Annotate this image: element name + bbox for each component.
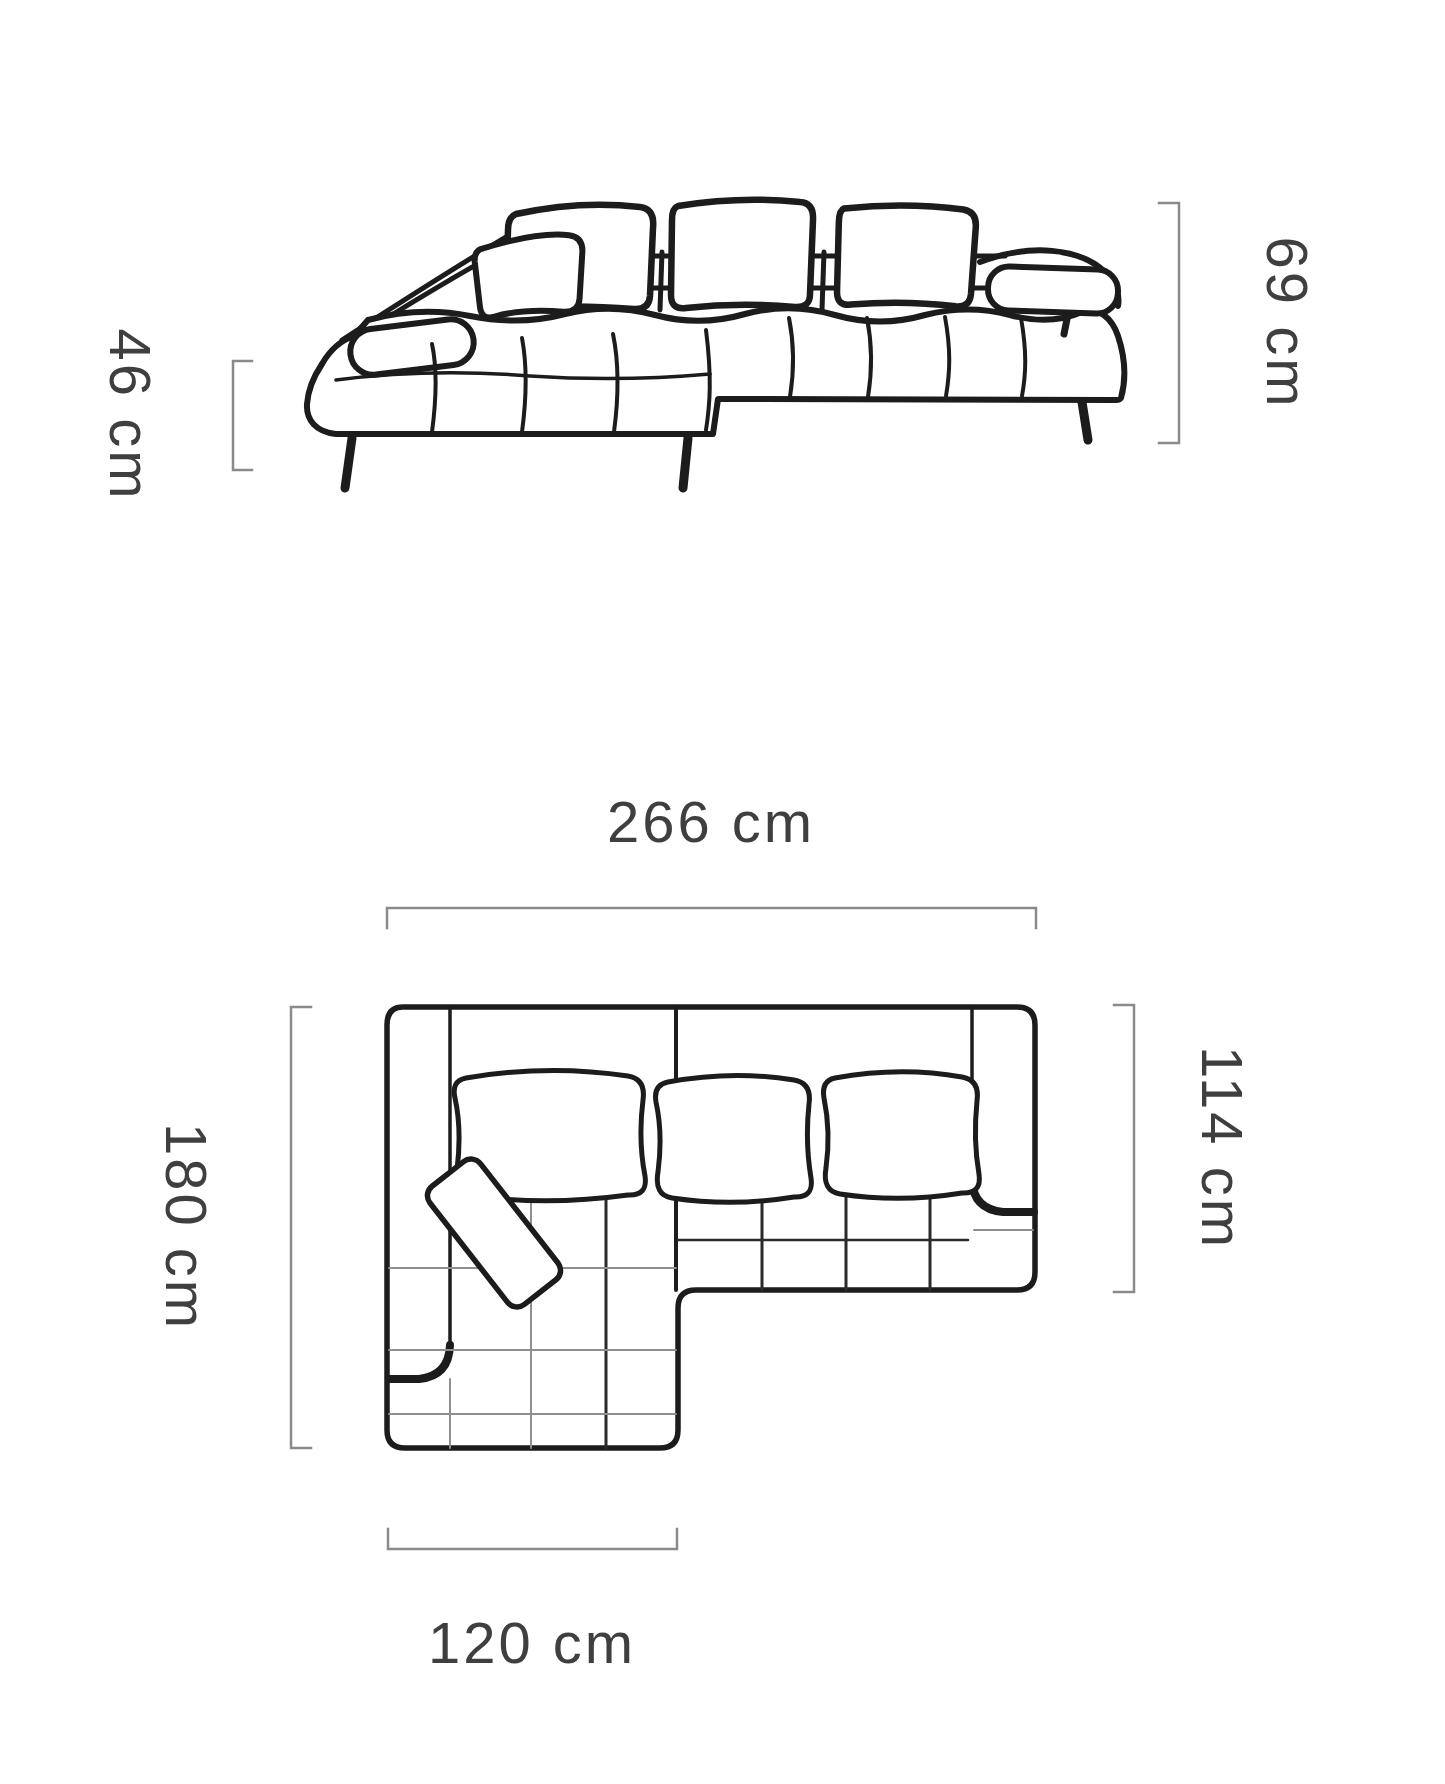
dimension-bracket-total-width xyxy=(387,908,1036,928)
sofa-top-view-drawing xyxy=(387,1007,1035,1448)
dimension-label-total-width: 266 cm xyxy=(581,787,841,857)
dimension-bracket-chaise-width xyxy=(388,1529,677,1549)
dimension-label-back-height: 69 cm xyxy=(1252,193,1322,453)
dimension-bracket-seat-height xyxy=(233,361,252,470)
page-root: 46 cm 69 cm 266 cm 180 cm 114 cm 120 cm xyxy=(0,0,1445,1784)
dimension-label-seat-height: 46 cm xyxy=(95,285,165,545)
dimension-label-chaise-width: 120 cm xyxy=(402,1608,662,1678)
dimension-bracket-side-depth xyxy=(1114,1005,1134,1292)
dimension-label-side-depth: 114 cm xyxy=(1187,1018,1257,1278)
sofa-front-view-drawing xyxy=(307,200,1125,488)
dimension-bracket-back-height xyxy=(1159,203,1179,443)
dimension-label-total-depth: 180 cm xyxy=(151,1097,221,1357)
dimension-bracket-total-depth xyxy=(291,1007,311,1448)
diagram-canvas xyxy=(0,0,1445,1784)
